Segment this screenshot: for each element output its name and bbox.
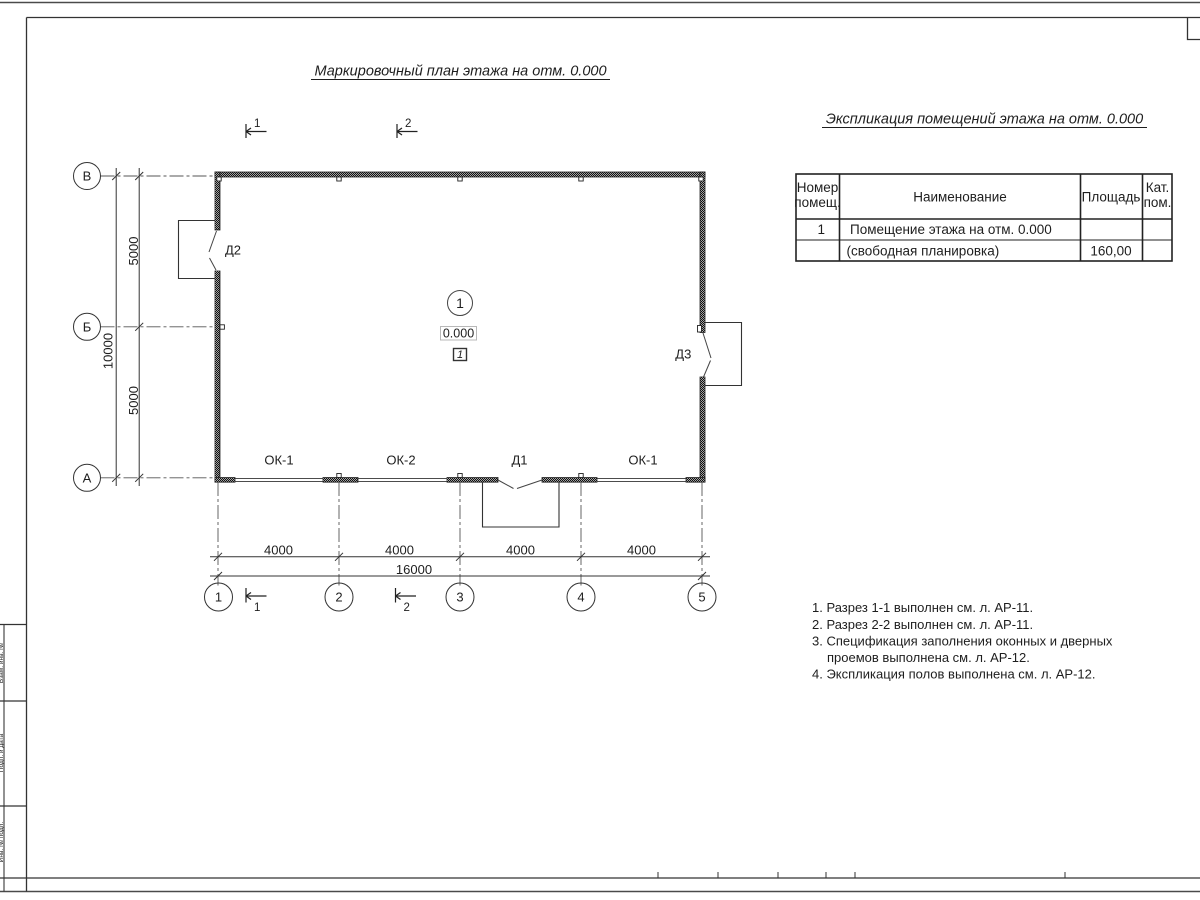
- svg-text:ОК-1: ОК-1: [628, 453, 657, 468]
- svg-text:пом.: пом.: [1144, 195, 1172, 210]
- svg-text:0.000: 0.000: [443, 327, 474, 341]
- svg-text:2: 2: [335, 590, 342, 605]
- svg-text:4000: 4000: [264, 543, 293, 558]
- svg-text:ОК-1: ОК-1: [264, 453, 293, 468]
- svg-text:Д1: Д1: [511, 453, 527, 468]
- svg-text:Площадь: Площадь: [1082, 190, 1141, 205]
- svg-text:160,00: 160,00: [1090, 244, 1131, 259]
- svg-text:5000: 5000: [126, 237, 141, 266]
- svg-text:1: 1: [254, 118, 260, 130]
- svg-text:Маркировочный план этажа на от: Маркировочный план этажа на отм. 0.000: [314, 64, 606, 80]
- svg-text:4. Экспликация полов выполнена: 4. Экспликация полов выполнена см. л. АР…: [812, 667, 1096, 682]
- svg-text:Кат.: Кат.: [1146, 180, 1170, 195]
- svg-text:10000: 10000: [101, 333, 116, 369]
- svg-text:4000: 4000: [627, 543, 656, 558]
- svg-text:Взам. инв. №: Взам. инв. №: [0, 643, 5, 683]
- svg-text:В: В: [83, 169, 92, 184]
- svg-text:проемов выполнена см. л. АР-12: проемов выполнена см. л. АР-12.: [827, 650, 1030, 665]
- svg-text:4: 4: [577, 590, 584, 605]
- svg-text:А: А: [83, 470, 92, 485]
- svg-text:4000: 4000: [385, 543, 414, 558]
- svg-text:2: 2: [405, 118, 411, 130]
- svg-text:помещ.: помещ.: [794, 195, 840, 210]
- svg-text:1: 1: [456, 295, 464, 311]
- svg-text:Помещение этажа на отм. 0.000: Помещение этажа на отм. 0.000: [850, 222, 1052, 237]
- svg-text:Д2: Д2: [225, 243, 241, 258]
- svg-text:ОК-2: ОК-2: [386, 453, 415, 468]
- svg-text:5: 5: [698, 590, 705, 605]
- svg-text:4000: 4000: [506, 543, 535, 558]
- svg-text:Б: Б: [83, 319, 92, 334]
- svg-text:1. Разрез 1-1 выполнен см. л.: 1. Разрез 1-1 выполнен см. л. АР-11.: [812, 600, 1033, 615]
- svg-text:Номер: Номер: [797, 180, 839, 195]
- svg-text:2. Разрез 2-2 выполнен см. л.: 2. Разрез 2-2 выполнен см. л. АР-11.: [812, 617, 1033, 632]
- svg-text:2: 2: [404, 602, 410, 614]
- svg-text:1: 1: [818, 222, 826, 237]
- svg-text:16000: 16000: [396, 562, 432, 577]
- svg-text:Инв. № подл.: Инв. № подл.: [0, 822, 5, 863]
- svg-text:1: 1: [254, 602, 260, 614]
- svg-text:1: 1: [215, 590, 222, 605]
- svg-text:Наименование: Наименование: [913, 190, 1007, 205]
- svg-text:Экспликация помещений этажа на: Экспликация помещений этажа на отм. 0.00…: [826, 112, 1143, 128]
- svg-text:1: 1: [457, 349, 463, 361]
- svg-text:Подп. и дата: Подп. и дата: [0, 733, 5, 772]
- svg-text:5000: 5000: [126, 386, 141, 415]
- svg-text:(свободная планировка): (свободная планировка): [847, 244, 1000, 259]
- svg-text:3: 3: [456, 590, 463, 605]
- svg-text:3. Спецификация заполнения око: 3. Спецификация заполнения оконных и две…: [812, 634, 1113, 649]
- svg-text:Д3: Д3: [675, 347, 691, 362]
